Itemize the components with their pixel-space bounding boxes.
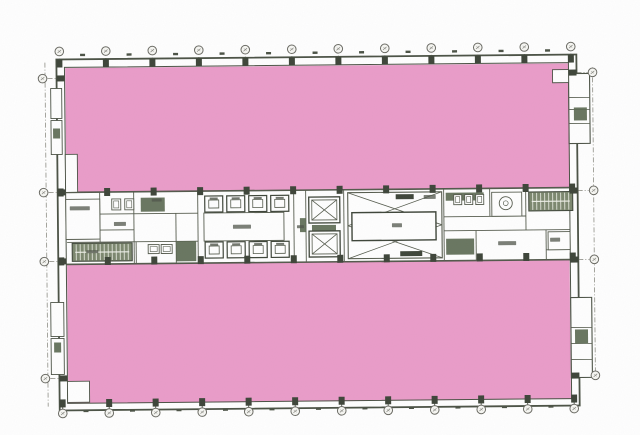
scan-noise-overlay	[0, 0, 640, 435]
floor-plan-image	[0, 0, 640, 435]
scanned-floor-plan-page	[0, 0, 640, 435]
